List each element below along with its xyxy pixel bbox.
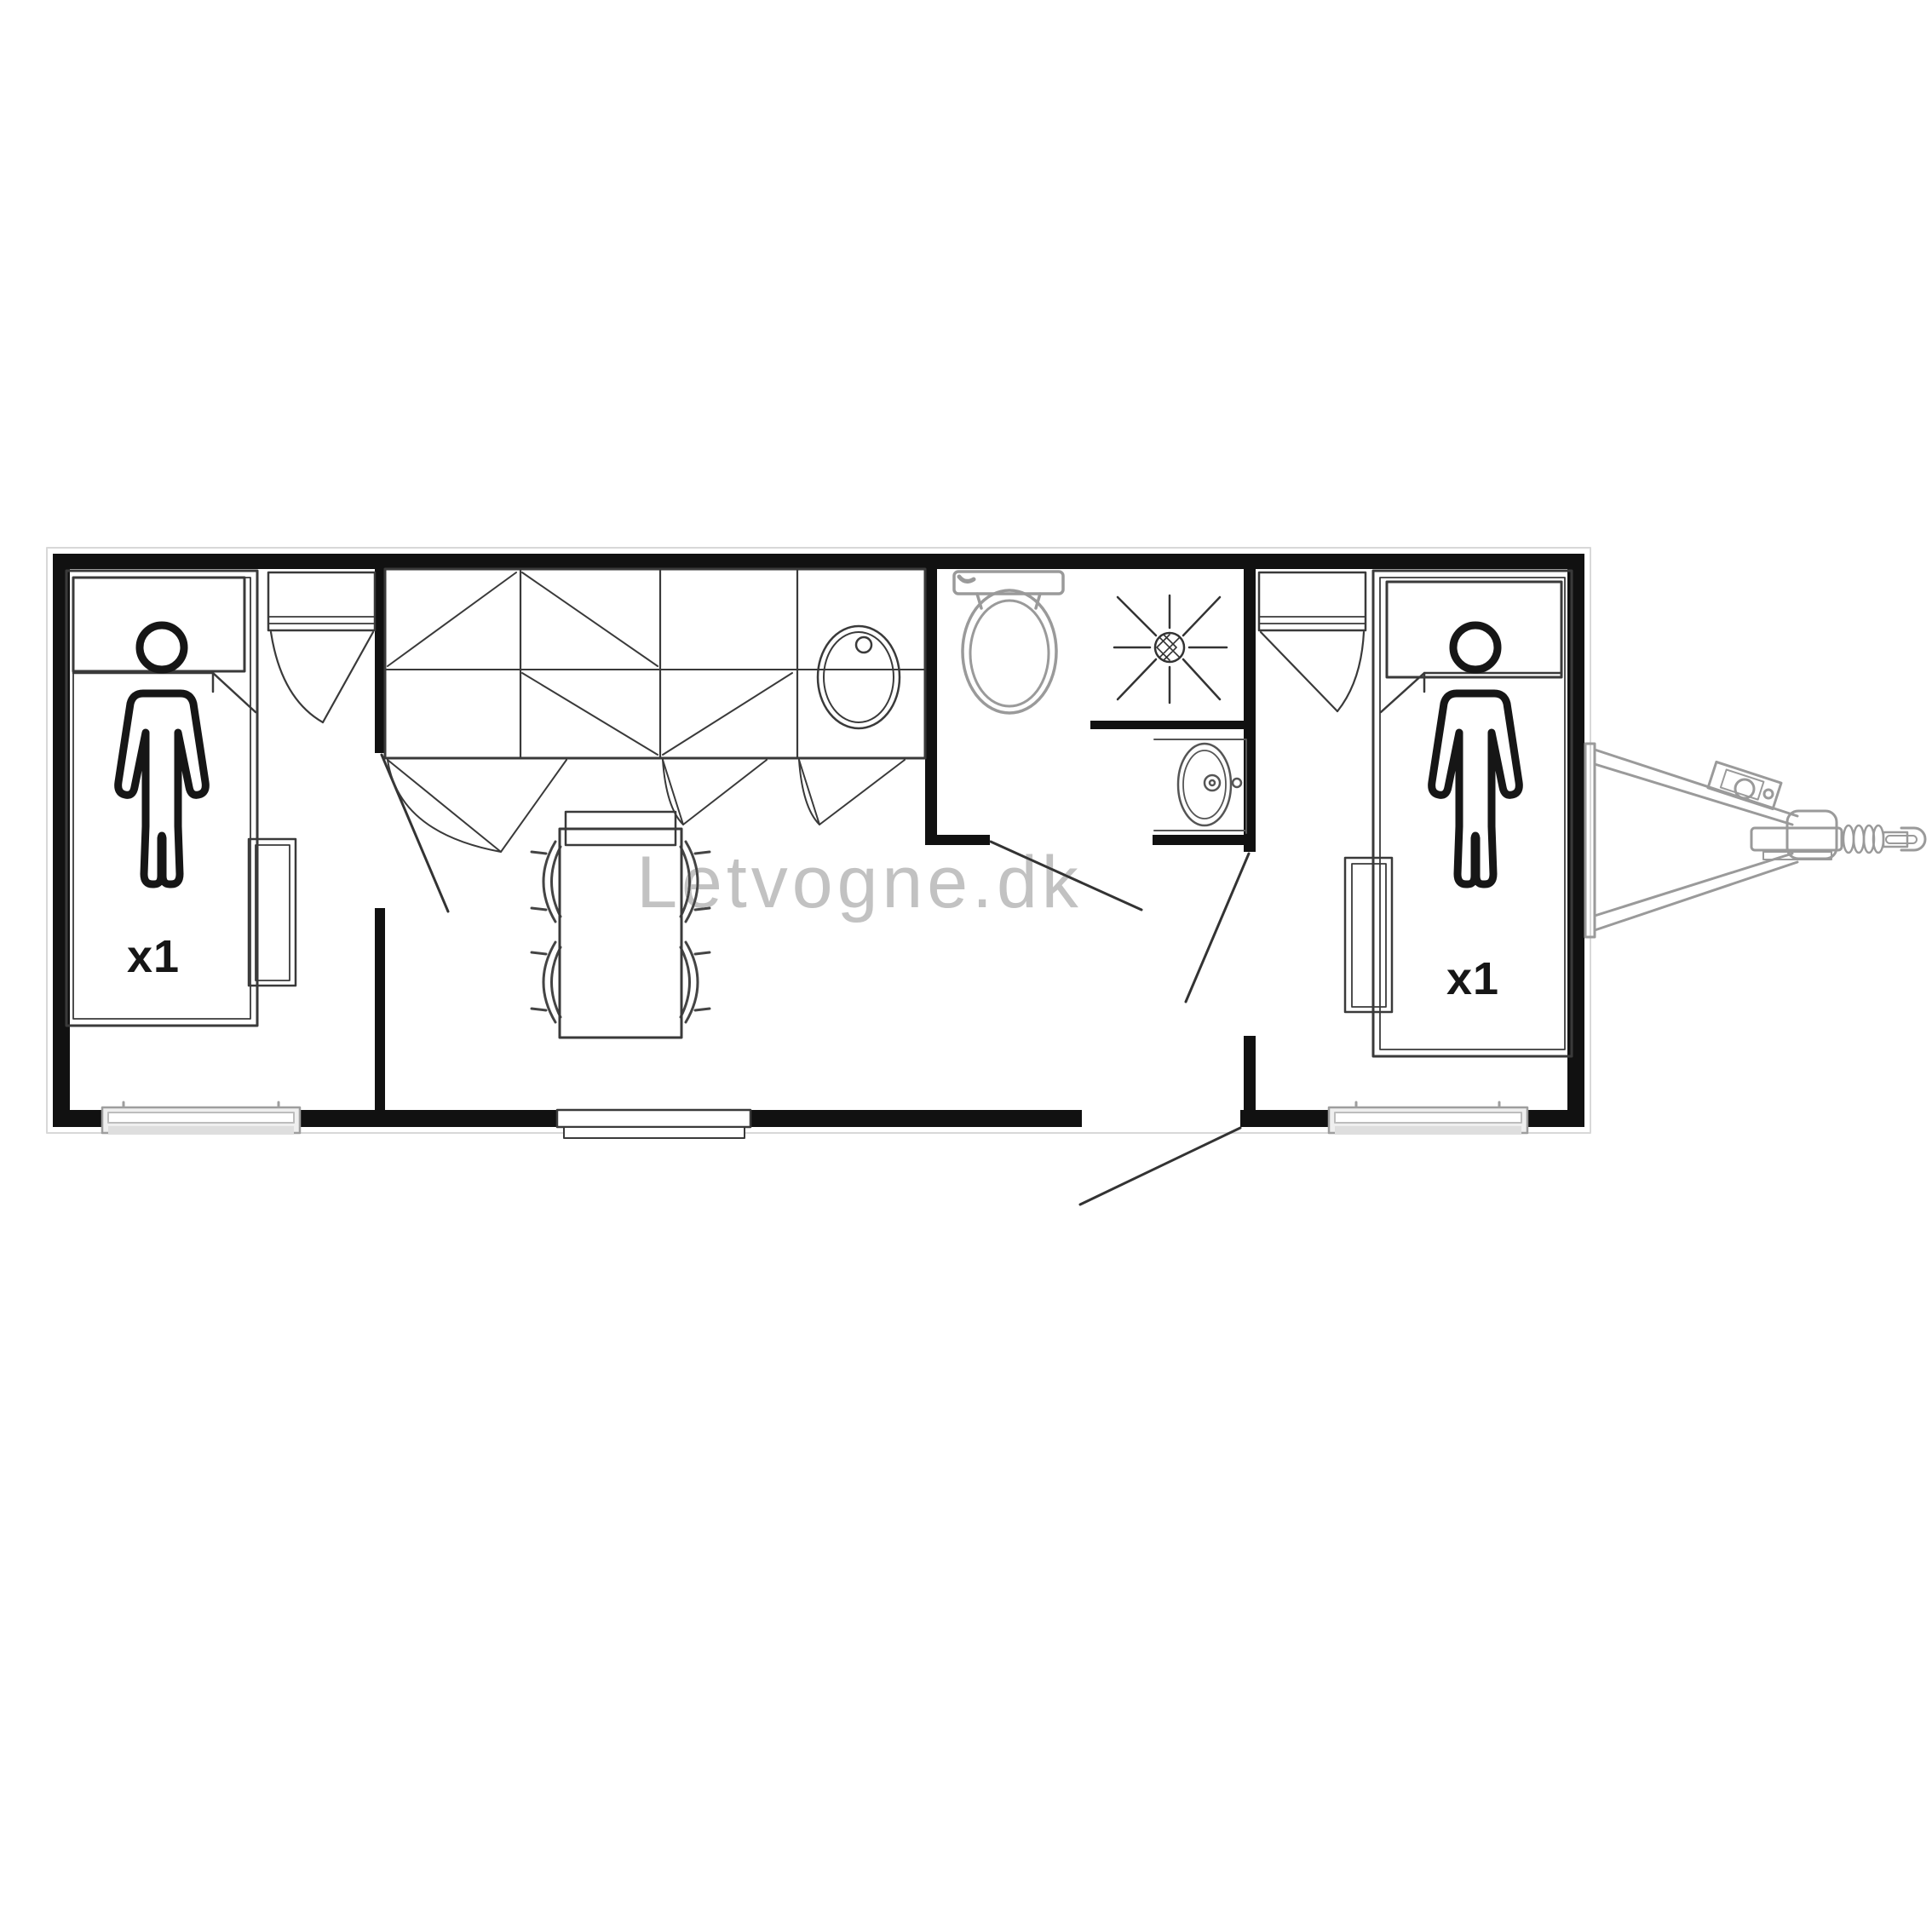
toilet-icon <box>954 572 1063 713</box>
closet-door-arc <box>1337 632 1364 711</box>
closet-door-leaf <box>323 632 373 722</box>
shower-icon <box>1114 595 1227 703</box>
shower-ray <box>1118 597 1156 635</box>
closet-box <box>268 572 375 630</box>
washbasin-icon <box>1154 739 1246 833</box>
wall-bathroom-bottom-b <box>1153 835 1251 845</box>
shower-ray <box>1183 659 1220 699</box>
wardrobe-right <box>1345 858 1392 1012</box>
wall-bottom-seg <box>296 1110 557 1127</box>
shower-ray <box>1118 659 1156 699</box>
wall-bottom-seg <box>1522 1110 1584 1127</box>
basin-faucet-dot <box>1210 780 1215 785</box>
closet-shelf <box>1259 617 1366 624</box>
bed-capacity-label-left: x1 <box>127 934 180 980</box>
door-swing-line-bedroom-right <box>1186 854 1249 1002</box>
basin-faucet <box>1205 775 1220 791</box>
hitch-arm-lower <box>1595 854 1797 930</box>
basin-tap-knob <box>1233 779 1241 787</box>
wall-shower-partition <box>1090 721 1251 729</box>
closet-box <box>1259 572 1366 630</box>
kitchen-counter <box>385 569 925 758</box>
person-icon-left <box>118 625 206 884</box>
wall-bathroom-left <box>925 569 937 837</box>
cabinet-door-swing <box>663 760 767 825</box>
toilet-bowl-inner <box>970 601 1049 706</box>
wardrobe-inner <box>1352 864 1386 1007</box>
cabinet-door-swing <box>799 760 905 825</box>
closet-door-leaf <box>1261 632 1337 711</box>
sink-outer <box>818 626 900 728</box>
shower-ray <box>1183 597 1220 635</box>
coupling-body <box>1751 828 1842 850</box>
wall-top <box>53 554 1583 569</box>
bathroom <box>954 572 1246 833</box>
toilet-flush-detail <box>959 577 974 581</box>
trailer-hitch-icon <box>1585 744 1925 937</box>
closet-door-arc <box>271 632 323 722</box>
closet-shelf <box>268 617 375 624</box>
watermark-text: Letvogne.dk <box>636 846 1083 919</box>
window-glass <box>108 1113 294 1123</box>
wardrobe-inner <box>256 845 290 980</box>
exterior-offset-outline <box>47 548 1590 1133</box>
toilet-bowl-outer <box>963 590 1056 713</box>
closet-left <box>268 572 375 722</box>
wall-bedroom-right-lower <box>1244 1036 1256 1110</box>
cabinet-dividers <box>520 569 797 758</box>
bedroom-right <box>1259 571 1572 1056</box>
door-swings <box>382 755 1249 1205</box>
sink-faucet <box>856 637 871 653</box>
cabinet-door-swing <box>388 760 566 852</box>
window-glass <box>1335 1113 1521 1123</box>
wall-bedroom-left-upper <box>375 569 385 753</box>
wall-right <box>1567 554 1584 1127</box>
bed-capacity-label-right: x1 <box>1446 956 1499 1002</box>
door-swing-line-entrance <box>1080 1128 1240 1205</box>
vanity-outline <box>1154 739 1246 833</box>
chair <box>532 942 561 1022</box>
exterior-walls <box>53 554 1584 1127</box>
chair <box>681 942 710 1022</box>
coupling-bellows <box>1843 825 1883 853</box>
shower-drain-hatch <box>1157 635 1179 660</box>
hitch-eye-slot <box>1886 836 1917 843</box>
closet-right <box>1259 572 1366 711</box>
window-sill <box>564 1127 745 1138</box>
person-icon-right <box>1432 625 1520 884</box>
window-bedroom-right <box>1329 1102 1527 1135</box>
sink-inner <box>824 632 894 722</box>
wall-bottom-seg <box>750 1110 1082 1127</box>
window-sill <box>1335 1126 1521 1135</box>
hitch-shaft <box>1883 832 1907 847</box>
hitch-arm-upper <box>1595 750 1797 825</box>
window-sill <box>108 1126 294 1135</box>
bedroom-left <box>66 571 375 1026</box>
jockey-pin <box>1764 790 1773 798</box>
kitchen <box>385 569 925 852</box>
wardrobe-left <box>249 839 296 986</box>
window-living <box>557 1110 750 1138</box>
chair <box>532 842 561 922</box>
interior-walls <box>375 569 1256 1110</box>
window-bedroom-left <box>102 1102 300 1135</box>
cabinet-door-diagonals <box>388 572 792 755</box>
floorplan-page: Letvogne.dk x1 x1 <box>0 0 1932 1932</box>
wall-bottom-seg <box>53 1110 108 1127</box>
floorplan-drawing <box>0 0 1932 1932</box>
wall-bedroom-left-lower <box>375 908 385 1110</box>
kitchen-sink-icon <box>818 626 900 728</box>
wall-bottom-seg <box>1240 1110 1334 1127</box>
window-frame <box>557 1110 750 1127</box>
